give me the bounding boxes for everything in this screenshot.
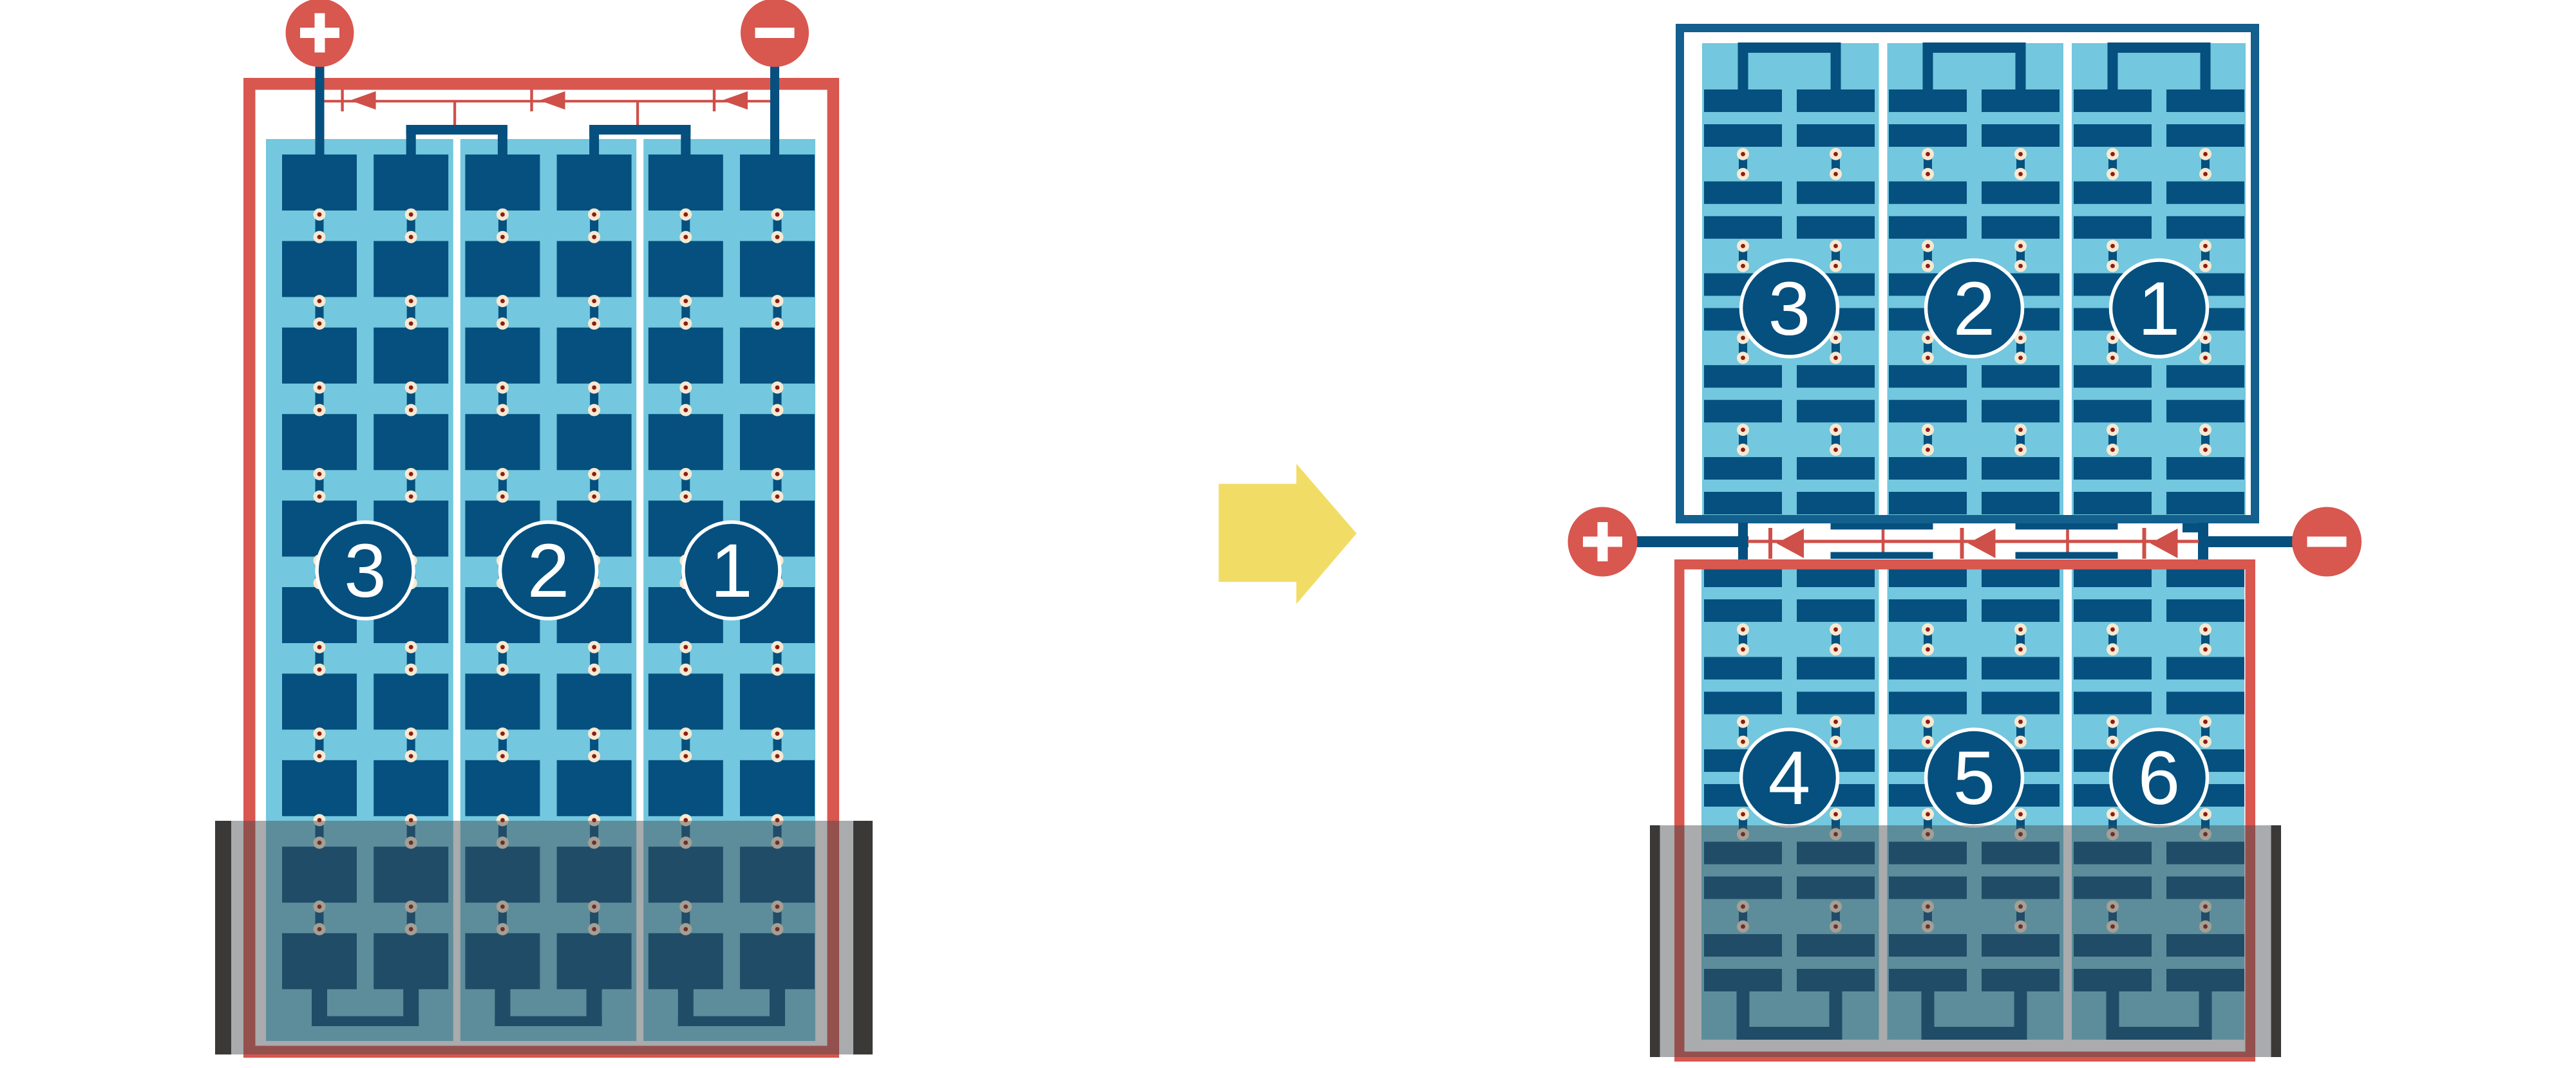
svg-text:3: 3 — [1768, 267, 1811, 351]
svg-text:3: 3 — [344, 529, 386, 614]
svg-text:1: 1 — [710, 529, 753, 614]
svg-text:5: 5 — [1953, 736, 1996, 821]
svg-text:6: 6 — [2138, 736, 2181, 821]
svg-text:2: 2 — [527, 529, 570, 614]
svg-text:2: 2 — [1953, 267, 1996, 351]
svg-text:4: 4 — [1768, 736, 1811, 821]
svg-text:1: 1 — [2138, 267, 2181, 351]
